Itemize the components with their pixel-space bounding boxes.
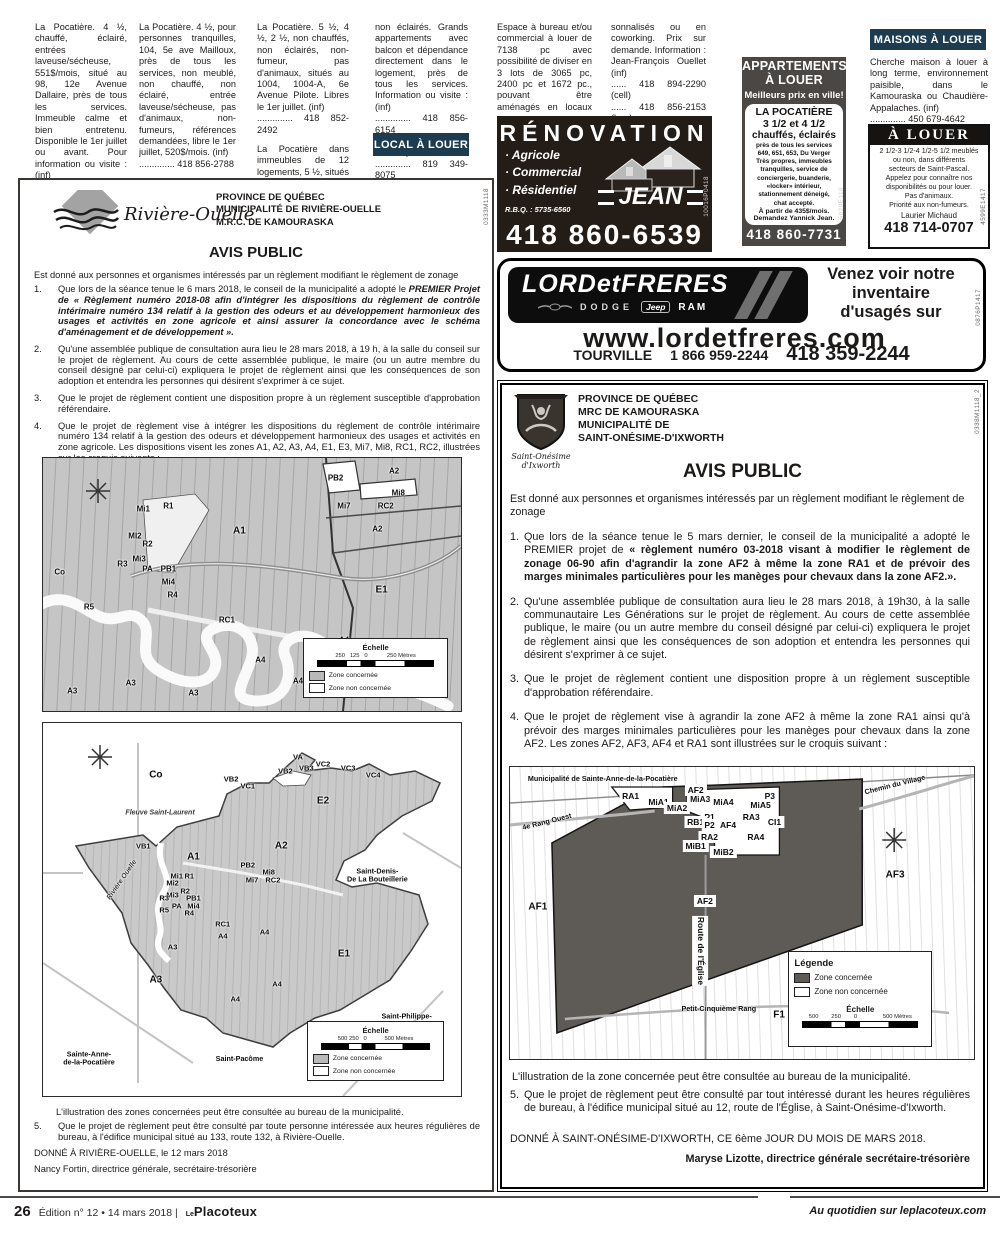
map-zone-label: AF4 (718, 820, 738, 830)
notice-header: PROVINCE DE QUÉBEC MRC DE KAMOURASKA MUN… (578, 393, 724, 446)
classified-column-2: La Pocatière. 4 ½, pour personnes tranqu… (139, 22, 236, 178)
map-zone-label: P2 (702, 820, 716, 830)
map-zone-label: R5 (159, 905, 169, 914)
scale-bar (802, 1021, 918, 1028)
ad-body-panel: LA POCATIÈRE 3 1/2 et 4 1/2 chauffés, éc… (745, 104, 843, 226)
header-line: M.R.C. DE KAMOURASKA (216, 217, 381, 229)
map-zone-label: E1 (375, 584, 387, 595)
footer-rule (0, 1196, 758, 1198)
map-zone-label: PB2 (328, 474, 344, 483)
ad-code: 5029E118 (838, 187, 845, 219)
lord-et-freres-ad: LORDetFRERES DODGE Jeep RAM Venez voir n… (497, 258, 986, 372)
ad-title: APPARTEMENTS À LOUER (742, 57, 846, 88)
item-number: 4. (510, 711, 519, 724)
classified-ad: Cherche maison à louer à long terme, env… (870, 57, 988, 125)
newspaper-page: La Pocatière. 4 ½, chauffé, éclairé, ent… (0, 0, 1000, 1238)
ad-text: près de tous les services 649, 651, 653,… (747, 142, 841, 209)
scale-values: 500 250 0 500 Mètres (794, 1014, 926, 1020)
map-zone-label: MiB1 (683, 841, 707, 851)
header-line: MUNICIPALITÉ DE (578, 419, 724, 432)
ad-code: 0876P1417 (975, 289, 982, 326)
map-zone-label: RC1 (219, 615, 235, 624)
ad-tagline: Venez voir notre inventaire d'usagés sur (816, 265, 966, 322)
scale-values: 250 125 0 250 Mètres (309, 653, 443, 659)
map-zone-label: A1 (233, 526, 246, 537)
scale-bar (321, 1043, 430, 1050)
map-zone-label: VC1 (241, 782, 256, 791)
ad-services: · Agricole· Commercial· Résidentiel (505, 147, 597, 199)
map-zone-label: A3 (149, 975, 162, 986)
notice-signature: Nancy Fortin, directrice générale, secré… (34, 1164, 257, 1174)
map-zone-label: AF3 (886, 870, 905, 881)
map-zone-label: RA1 (620, 791, 641, 801)
notice-item: 3.Que le projet de règlement contient un… (510, 673, 970, 700)
maisons-a-louer-header: MAISONS À LOUER (870, 29, 986, 50)
map-zone-label: Mi7 (337, 502, 350, 511)
ad-phone: 418 714-0707 (870, 220, 988, 236)
legend-swatch-concernee (794, 973, 810, 983)
ad-brand-name: JEAN (597, 183, 704, 211)
zoning-map-croquis-2: CoFleuve Saint-LaurentVAVB3VC2VC3VC4VB2V… (42, 722, 462, 1097)
legend-swatch-non-concernee (794, 987, 810, 997)
item-text: Qu'une assemblée publique de consultatio… (58, 344, 480, 386)
avis-public-saint-onesime: Saint-Onésime d'Ixworth PROVINCE DE QUÉB… (497, 380, 988, 1192)
notice-item: 1.Que lors de la séance tenue le 6 mars … (34, 284, 480, 338)
map-zone-label: Mi2 (166, 879, 179, 888)
notice-items: 1.Que lors de la séance tenue le 6 mars … (34, 284, 480, 470)
map-zone-label: A3 (67, 686, 77, 695)
item-number: 4. (34, 421, 42, 432)
ad-contact: Laurier Michaud (870, 211, 988, 220)
ad-contact: Demandez Yannick Jean. (747, 215, 841, 222)
map-zone-label: A1 (187, 852, 200, 863)
ad-city: TOURVILLE (573, 347, 652, 363)
map-zone-label: AF2 (695, 896, 715, 906)
notice-signature: Maryse Lizotte, directrice générale secr… (510, 1153, 970, 1165)
map-zone-label: A2 (275, 841, 288, 852)
local-a-louer-header: LOCAL À LOUER (373, 133, 469, 156)
item-text: Que le projet de règlement vise à agrand… (524, 711, 970, 750)
map-zone-label: RC2 (378, 502, 394, 511)
ad-features: chauffés, éclairés (747, 130, 841, 141)
notice-title: AVIS PUBLIC (498, 461, 987, 483)
ad-price: À partir de 435$/mois. (747, 208, 841, 215)
ad-rbq: R.B.Q. : 5735-6560 (505, 205, 570, 214)
map-zone-label: VB3 (299, 763, 314, 772)
notice-code: 0333M1118 (483, 188, 490, 225)
map-zone-label: VC3 (341, 763, 356, 772)
map-legend: Légende Zone concernée Zone non concerné… (788, 951, 932, 1047)
legend-title: Légende (794, 958, 926, 969)
item-text: Qu'une assemblée publique de consultatio… (524, 596, 970, 662)
notice-item: 5.Que le projet de règlement peut être c… (510, 1089, 970, 1127)
map-zone-label: A3 (168, 942, 178, 951)
map-zone-label: A4 (230, 995, 240, 1004)
legend-label: Zone non concernée (814, 987, 887, 996)
map-zone-label: MiA2 (665, 803, 689, 813)
map-zone-label: A4 (255, 656, 265, 665)
ad-tagline: Meilleurs prix en ville! (742, 90, 846, 101)
map-zone-label: E1 (338, 949, 350, 960)
zoning-map-croquis-1: PB2A2Mi8RC2Mi7A2A1R1Mi1MI2R2Mi3R3PAPB1Mi… (42, 457, 462, 712)
map-zone-label: A4 (272, 980, 282, 989)
map-zone-label: RC1 (215, 920, 230, 929)
legend-scale-title: Échelle (313, 1026, 438, 1035)
chrysler-wing-icon (538, 303, 572, 311)
map-zone-label: R4 (185, 909, 195, 918)
map-zone-label: Co (149, 770, 162, 781)
header-line: SAINT-ONÉSIME-D'IXWORTH (578, 432, 724, 445)
legend-label: Zone concernée (333, 1055, 382, 1062)
newspaper-brand: Placoteux (194, 1204, 257, 1219)
ad-logo-panel: LORDetFRERES DODGE Jeep RAM (508, 267, 808, 323)
map-zone-label: VB2 (224, 774, 239, 783)
notice-title: AVIS PUBLIC (20, 244, 492, 261)
map-zone-label: MiA5 (748, 800, 772, 810)
footer-rule (790, 1196, 1000, 1198)
dodge-logo: DODGE (580, 302, 633, 312)
map-zone-label: PA (142, 565, 153, 574)
notice-items: 1.Que lors de la séance tenue le 5 mars … (510, 531, 970, 762)
map-zone-label: Municipalité de Sainte-Anne-de-la-Pocati… (528, 775, 678, 783)
footer-tagline: Au quotidien sur leplacoteux.com (809, 1205, 986, 1217)
map-zone-label: AF1 (528, 902, 547, 913)
map-zone-label: Saint-Denis- De La Bouteillerie (347, 868, 408, 885)
map-zone-label: VA (293, 752, 303, 761)
notice-item: 3.Que le projet de règlement contient un… (34, 393, 480, 415)
ad-phone: 418 860-6539 (497, 219, 712, 251)
brand-prefix: Le (186, 1211, 194, 1218)
map-zone-label: R3 (117, 560, 127, 569)
map-zone-label: PB2 (241, 860, 256, 869)
notice-given-line: DONNÉ À SAINT-ONÉSIME-D'IXWORTH, CE 6ème… (510, 1133, 926, 1145)
notice-item: 4.Que le projet de règlement vise à agra… (510, 711, 970, 751)
notice-intro: Est donné aux personnes et organismes in… (34, 270, 478, 280)
ram-logo: RAM (678, 302, 707, 313)
item-number: 1. (34, 284, 42, 295)
zoning-map-saint-onesime: Municipalité de Sainte-Anne-de-la-Pocati… (509, 766, 975, 1060)
map-zone-label: VB1 (136, 842, 151, 851)
map-zone-label: MiA3 (688, 794, 712, 804)
ad-phone: 418 359-2244 (786, 343, 909, 366)
ad-phone-tollfree: 1 866 959-2244 (670, 347, 768, 363)
classified-ad: Espace à bureau et/ou commercial à louer… (497, 22, 592, 125)
legend-swatch-concernee (309, 671, 325, 681)
legend-swatch-non-concernee (309, 683, 325, 693)
avis-public-riviere-ouelle: Rivière-Ouelle PROVINCE DE QUÉBEC MUNICI… (18, 178, 494, 1192)
map-zone-label: Co (54, 567, 65, 576)
notice-item: 1.Que lors de la séance tenue le 5 mars … (510, 531, 970, 585)
map-zone-label: Chemin du Village (864, 773, 926, 796)
jeep-badge: Jeep (641, 301, 670, 313)
classified-ad: sonnalisés ou en coworking. Prix sur dem… (611, 22, 706, 125)
item-number: 2. (510, 596, 519, 609)
item-number: 1. (510, 531, 519, 544)
map-legend: Échelle 250 125 0 250 Mètres Zone concer… (303, 638, 449, 699)
map-zone-label: VB2 (278, 767, 293, 776)
map-zone-label: A4 (260, 927, 270, 936)
legend-swatch-non-concernee (313, 1066, 329, 1076)
ad-service-item: · Commercial (505, 164, 597, 181)
map-zone-label: RA4 (745, 832, 766, 842)
map-zone-label: E2 (317, 796, 329, 807)
header-line: PROVINCE DE QUÉBEC (216, 192, 381, 204)
ad-units: 3 1/2 et 4 1/2 (747, 118, 841, 130)
map-zone-label: R4 (167, 590, 177, 599)
item-number: 2. (34, 344, 42, 355)
header-line: MUNICIPALITÉ DE RIVIÈRE-OUELLE (216, 204, 381, 216)
map-zone-label: A2 (389, 466, 399, 475)
item-text: Que le projet de règlement contient une … (58, 393, 480, 414)
map-zone-label: Mi3 (132, 555, 145, 564)
map-zone-label: A4 (218, 931, 228, 940)
legend-scale-title: Échelle (309, 643, 443, 652)
map-zone-label: VC2 (316, 760, 331, 769)
scale-bar (317, 660, 435, 667)
notice-given-line: DONNÉ À RIVIÈRE-OUELLE, le 12 mars 2018 (34, 1148, 228, 1158)
notice-item: 2.Qu'une assemblée publique de consultat… (34, 344, 480, 387)
ad-place: LA POCATIÈRE (747, 106, 841, 118)
map-zone-label: Mi8 (392, 489, 405, 498)
map-zone-label: VC4 (366, 771, 381, 780)
map-caption: L'illustration de la zone concernée peut… (512, 1071, 970, 1083)
item-text: Que le projet de règlement peut être con… (58, 1121, 480, 1142)
ad-code: 10016P0418 (703, 176, 710, 217)
map-zone-label: Mi7 (246, 875, 259, 884)
map-zone-label: Rivière Ouelle (106, 859, 139, 901)
classified-ad: La Pocatière. 5 ½, 4 ½, 2 ½, non chauffé… (257, 22, 349, 136)
notice-item: 2.Qu'une assemblée publique de consultat… (510, 596, 970, 663)
map-zone-label: Route de l'Église (693, 917, 707, 985)
header-line: MRC DE KAMOURASKA (578, 406, 724, 419)
map-zone-label: MI2 (128, 532, 141, 541)
footer-left: 26 Édition n° 12 • 14 mars 2018 | LePlac… (14, 1203, 257, 1221)
header-line: PROVINCE DE QUÉBEC (578, 393, 724, 406)
item-text: Que le projet de règlement contient une … (524, 673, 970, 698)
page-number: 26 (14, 1203, 31, 1220)
map-zone-label: Sainte-Anne- de-la-Pocatière (63, 1050, 115, 1067)
map-zone-label: R1 (163, 502, 173, 511)
item-number: 3. (510, 673, 519, 686)
item-number: 5. (510, 1089, 519, 1102)
map-zone-label: A3 (188, 689, 198, 698)
classified-ad: La Pocatière. 4 ½, pour personnes tranqu… (139, 22, 236, 170)
map-zone-label: MiA4 (711, 797, 735, 807)
appartements-a-louer-ad: APPARTEMENTS À LOUER Meilleurs prix en v… (742, 57, 846, 246)
scale-values: 500 250 0 500 Mètres (313, 1036, 438, 1042)
map-zone-label: Saint-Pacôme (216, 1055, 264, 1063)
ad-code: 4599E1417 (980, 188, 987, 225)
edition-info: Édition n° 12 • 14 mars 2018 | (39, 1207, 178, 1219)
renovation-jean-ad: RÉNOVATION · Agricole· Commercial· Résid… (497, 116, 712, 252)
legend-scale-title: Échelle (794, 1005, 926, 1014)
legend-swatch-concernee (313, 1054, 329, 1064)
item-text: Que le projet de règlement peut être con… (524, 1089, 970, 1114)
map-zone-label: PA (172, 901, 182, 910)
map-zone-label: Petit-Cinquième Rang (681, 1005, 756, 1013)
map-zone-label: RA3 (741, 812, 762, 822)
ad-service-item: · Résidentiel (505, 182, 597, 199)
ad-service-item: · Agricole (505, 147, 597, 164)
map-zone-label: R5 (84, 603, 94, 612)
map-zone-label: F1 (773, 1010, 785, 1021)
maisons-column: Cherche maison à louer à long terme, env… (870, 57, 988, 133)
a-louer-ad: À LOUER 2 1/2-3 1/2-4 1/2-5 1/2 meublés … (868, 124, 990, 249)
legend-label: Zone non concernée (329, 685, 391, 692)
item-number: 5. (34, 1121, 42, 1132)
saint-onesime-crest (512, 391, 570, 453)
notice-intro: Est donné aux personnes et organismes in… (510, 493, 968, 520)
map-zone-label: R2 (142, 540, 152, 549)
map-zone-label: A4 (293, 676, 303, 685)
legend-label: Zone non concernée (333, 1068, 395, 1075)
map-zone-label: A3 (126, 679, 136, 688)
map-legend: Échelle 500 250 0 500 Mètres Zone concer… (307, 1021, 444, 1082)
ad-phone: 418 860-7731 (742, 227, 846, 242)
notice-code: 0338M1118_2 (974, 389, 981, 434)
riviere-ouelle-logo (52, 190, 120, 242)
ad-title: À LOUER (870, 126, 988, 145)
map-zone-label: 4e Rang Ouest (522, 812, 573, 832)
decor-bar (598, 190, 614, 205)
ad-text: 2 1/2-3 1/2-4 1/2-5 1/2 meublés ou non, … (870, 147, 988, 210)
legend-label: Zone concernée (329, 672, 378, 679)
item-text: Que lors de la séance tenue le 6 mars 20… (58, 284, 409, 294)
map-zone-label: R1 (185, 871, 195, 880)
notice-header: PROVINCE DE QUÉBEC MUNICIPALITÉ DE RIVIÈ… (216, 192, 381, 229)
map-zone-label: R3 (159, 894, 169, 903)
map-zone-label: MiB2 (711, 847, 735, 857)
map-zone-label: A2 (372, 524, 382, 533)
map-zone-label: PB1 (161, 565, 177, 574)
map-caption: L'illustration des zones concernées peut… (56, 1107, 486, 1117)
legend-label: Zone concernée (814, 973, 872, 982)
map-zone-label: RC2 (265, 875, 280, 884)
item-number: 3. (34, 393, 42, 404)
map-zone-label: Mi4 (162, 577, 175, 586)
map-zone-label: Fleuve Saint-Laurent (125, 809, 194, 816)
notice-item: 5.Que le projet de règlement peut être c… (34, 1121, 480, 1149)
map-zone-label: Mi1 (137, 504, 150, 513)
map-zone-label: CI1 (766, 817, 783, 827)
decor-bar (687, 190, 703, 205)
